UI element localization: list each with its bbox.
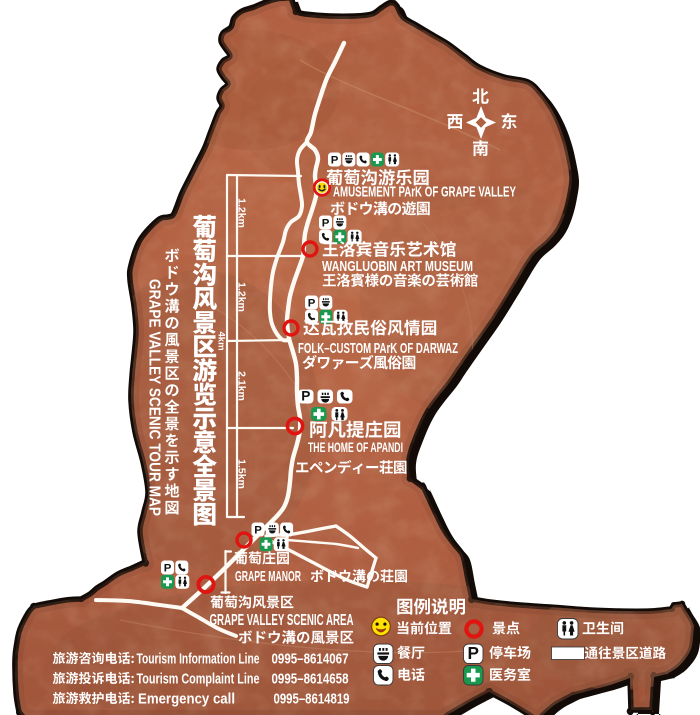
- svg-text:1.5km: 1.5km: [236, 459, 248, 489]
- svg-text:0995–8614658: 0995–8614658: [272, 671, 349, 688]
- svg-text:FOLK–CUSTOM PArK OF DARWAZ: FOLK–CUSTOM PArK OF DARWAZ: [298, 340, 458, 357]
- svg-text:P: P: [308, 297, 316, 309]
- svg-text:0995–8614819: 0995–8614819: [274, 691, 350, 708]
- svg-text:1.2km: 1.2km: [236, 282, 248, 312]
- svg-text:P: P: [331, 154, 339, 166]
- svg-text:AMUSEMENT PArK OF GRAPE VALLEY: AMUSEMENT PArK OF GRAPE VALLEY: [333, 184, 516, 201]
- svg-text:WANGLUOBIN ART MUSEUM: WANGLUOBIN ART MUSEUM: [322, 258, 473, 275]
- svg-text:GRAPE VALLEY SCENIC AREA: GRAPE VALLEY SCENIC AREA: [210, 612, 354, 629]
- svg-text:THE HOME OF APANDI: THE HOME OF APANDI: [308, 439, 403, 455]
- svg-text:GRAPE VALLEY SCENIC TOUR MAP: GRAPE VALLEY SCENIC TOUR MAP: [146, 279, 163, 516]
- svg-text:0995–8614067: 0995–8614067: [272, 651, 349, 668]
- svg-text:Tourism Information Line: Tourism Information Line: [137, 651, 260, 668]
- svg-text:P: P: [164, 562, 172, 574]
- svg-text:Emergency call: Emergency call: [138, 691, 235, 708]
- svg-text:Tourism Complaint Line: Tourism Complaint Line: [137, 671, 260, 688]
- svg-text:2.1km: 2.1km: [236, 371, 248, 401]
- svg-text:P: P: [322, 217, 330, 229]
- svg-text:4km: 4km: [216, 331, 227, 350]
- svg-text:1.2km: 1.2km: [236, 198, 248, 228]
- svg-text:P: P: [254, 524, 262, 536]
- svg-text:P: P: [301, 388, 310, 403]
- svg-text:P: P: [467, 643, 478, 663]
- svg-text:GRAPE MANOR: GRAPE MANOR: [235, 568, 301, 585]
